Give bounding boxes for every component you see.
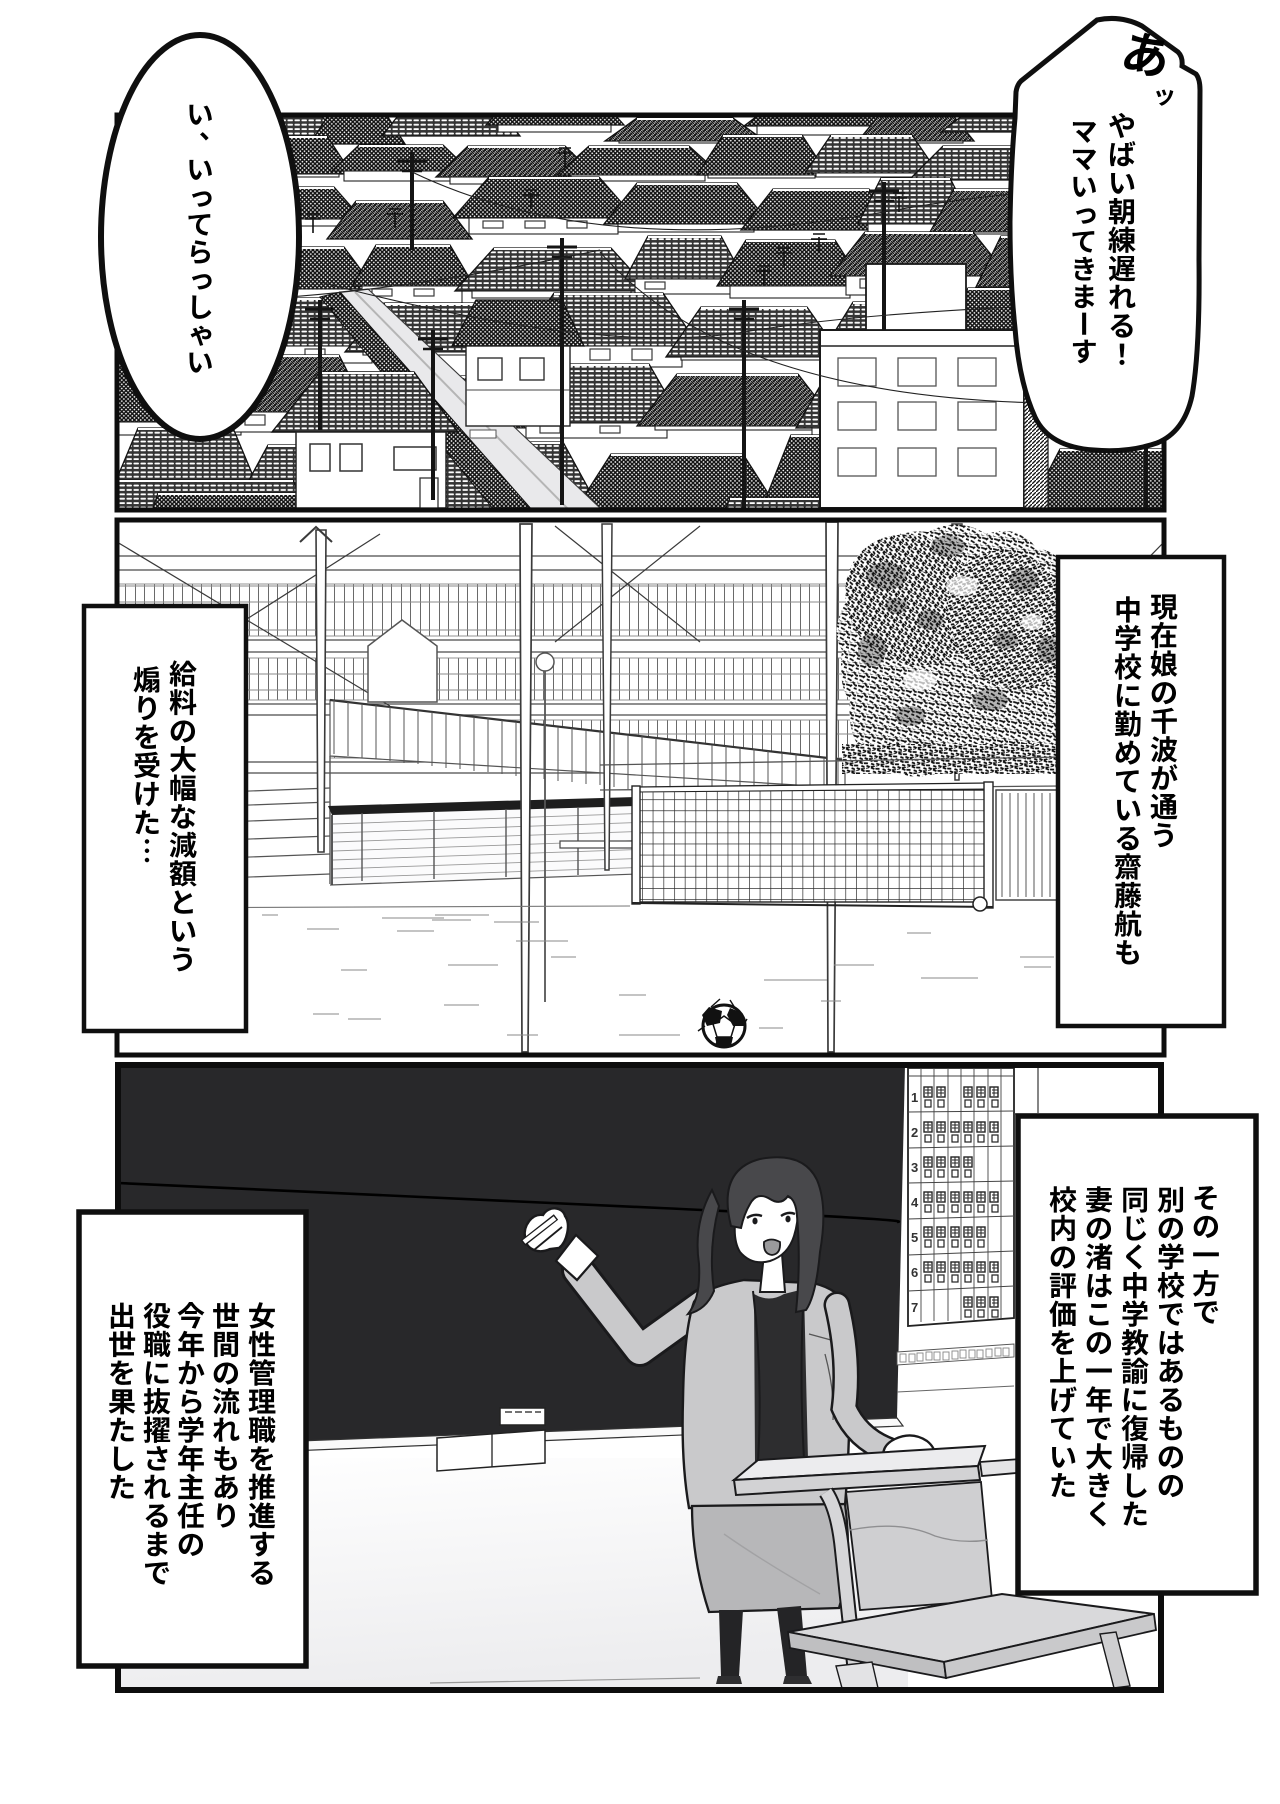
svg-text:7: 7 xyxy=(911,1300,918,1315)
svg-text:4: 4 xyxy=(911,1195,919,1210)
svg-text:1: 1 xyxy=(911,1090,918,1105)
svg-text:6: 6 xyxy=(911,1265,918,1280)
svg-text:2: 2 xyxy=(911,1125,918,1140)
svg-text:5: 5 xyxy=(911,1230,918,1245)
svg-text:3: 3 xyxy=(911,1160,918,1175)
